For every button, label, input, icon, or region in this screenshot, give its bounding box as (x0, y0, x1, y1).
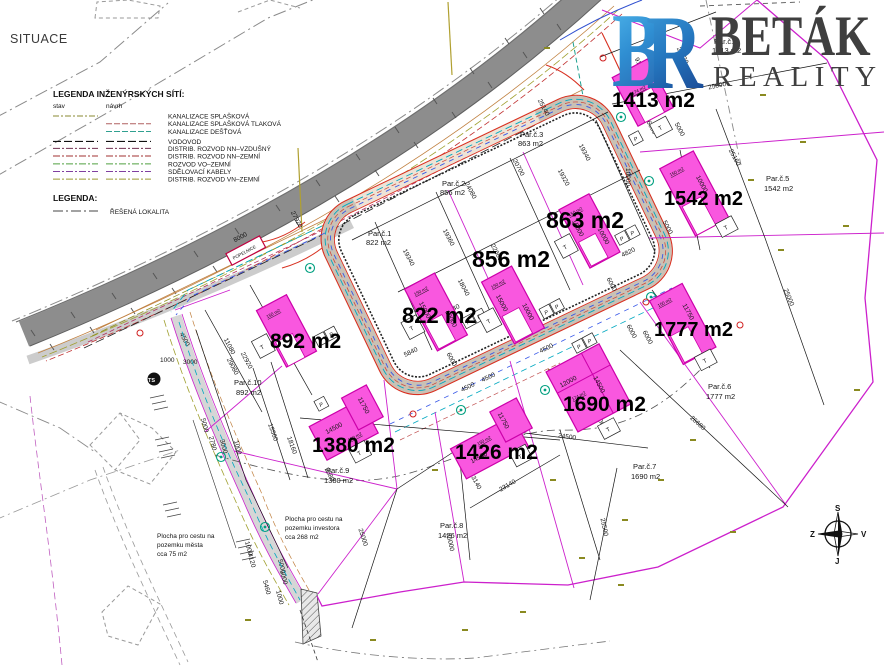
svg-text:1542 m2: 1542 m2 (764, 184, 793, 193)
svg-text:Par.č.1: Par.č.1 (368, 229, 391, 238)
svg-text:Par.č.10: Par.č.10 (234, 378, 262, 387)
svg-text:1690 m2: 1690 m2 (631, 472, 660, 481)
svg-text:822 m2: 822 m2 (402, 303, 477, 328)
svg-text:DISTRIB. ROZVOD NN–VZDUŠNÝ: DISTRIB. ROZVOD NN–VZDUŠNÝ (168, 144, 272, 153)
svg-text:pozemku investora: pozemku investora (285, 525, 340, 532)
svg-text:892 m2: 892 m2 (236, 388, 261, 397)
svg-text:cca 268 m2: cca 268 m2 (285, 534, 319, 541)
svg-text:856 m2: 856 m2 (440, 188, 465, 197)
svg-text:LEGENDA:: LEGENDA: (53, 193, 98, 203)
svg-text:1380 m2: 1380 m2 (324, 476, 353, 485)
svg-text:cca 75 m2: cca 75 m2 (157, 551, 187, 558)
svg-text:863 m2: 863 m2 (546, 207, 624, 233)
svg-text:stav: stav (53, 103, 66, 110)
svg-text:863 m2: 863 m2 (518, 139, 543, 148)
svg-text:Par.č.3: Par.č.3 (520, 130, 543, 139)
svg-text:KANALIZACE SPLAŠKOVÁ TLAKOVÁ: KANALIZACE SPLAŠKOVÁ TLAKOVÁ (168, 119, 282, 128)
svg-text:REALITY: REALITY (713, 61, 883, 93)
svg-text:návrh: návrh (106, 103, 123, 110)
svg-text:Par.č.2: Par.č.2 (442, 179, 465, 188)
svg-text:DISTRIB. ROZVOD NN–ZEMNÍ: DISTRIB. ROZVOD NN–ZEMNÍ (168, 152, 260, 161)
svg-text:SDĚLOVACÍ KABELY: SDĚLOVACÍ KABELY (168, 167, 232, 176)
svg-text:DISTRIB. ROZVOD VN–ZEMNÍ: DISTRIB. ROZVOD VN–ZEMNÍ (168, 175, 260, 184)
svg-text:S: S (835, 504, 841, 513)
svg-text:1426 m2: 1426 m2 (438, 531, 467, 540)
svg-text:Par.č.9: Par.č.9 (326, 466, 349, 475)
svg-text:LEGENDA INŽENÝRSKÝCH SÍTÍ:: LEGENDA INŽENÝRSKÝCH SÍTÍ: (53, 88, 185, 99)
svg-text:R: R (646, 0, 704, 112)
svg-text:KANALIZACE SPLAŠKOVÁ: KANALIZACE SPLAŠKOVÁ (168, 112, 250, 121)
svg-text:VODOVOD: VODOVOD (168, 139, 202, 146)
svg-text:1542 m2: 1542 m2 (664, 188, 743, 210)
svg-text:J: J (835, 557, 839, 566)
svg-text:822 m2: 822 m2 (366, 238, 391, 247)
svg-text:TS: TS (148, 378, 155, 384)
svg-text:Par.č.7: Par.č.7 (633, 462, 656, 471)
svg-text:Z: Z (810, 530, 815, 539)
svg-text:pozemku města: pozemku města (157, 542, 203, 549)
svg-text:Par.č.8: Par.č.8 (440, 521, 463, 530)
svg-text:Par.č.5: Par.č.5 (766, 174, 789, 183)
svg-text:1426 m2: 1426 m2 (455, 441, 538, 464)
svg-text:1000: 1000 (160, 357, 175, 364)
svg-text:10000: 10000 (624, 168, 631, 186)
svg-text:3000: 3000 (183, 359, 198, 366)
svg-text:ŘEŠENÁ LOKALITA: ŘEŠENÁ LOKALITA (110, 207, 170, 216)
svg-text:KANALIZACE DEŠŤOVÁ: KANALIZACE DEŠŤOVÁ (168, 127, 242, 136)
svg-text:Plocha pro cestu na: Plocha pro cestu na (285, 516, 343, 523)
svg-text:856 m2: 856 m2 (472, 246, 550, 272)
svg-text:Par.č.6: Par.č.6 (708, 382, 731, 391)
svg-text:SITUACE: SITUACE (10, 32, 68, 46)
svg-text:1380 m2: 1380 m2 (312, 434, 395, 457)
svg-text:1777 m2: 1777 m2 (706, 392, 735, 401)
svg-text:BETÁK: BETÁK (711, 5, 871, 68)
svg-text:V: V (861, 530, 867, 539)
svg-text:Plocha pro cestu na: Plocha pro cestu na (157, 533, 215, 540)
svg-text:1777 m2: 1777 m2 (654, 319, 733, 341)
svg-text:892 m2: 892 m2 (270, 330, 341, 353)
svg-text:ROZVOD VO–ZEMNÍ: ROZVOD VO–ZEMNÍ (168, 160, 231, 169)
svg-text:1690 m2: 1690 m2 (563, 393, 646, 416)
